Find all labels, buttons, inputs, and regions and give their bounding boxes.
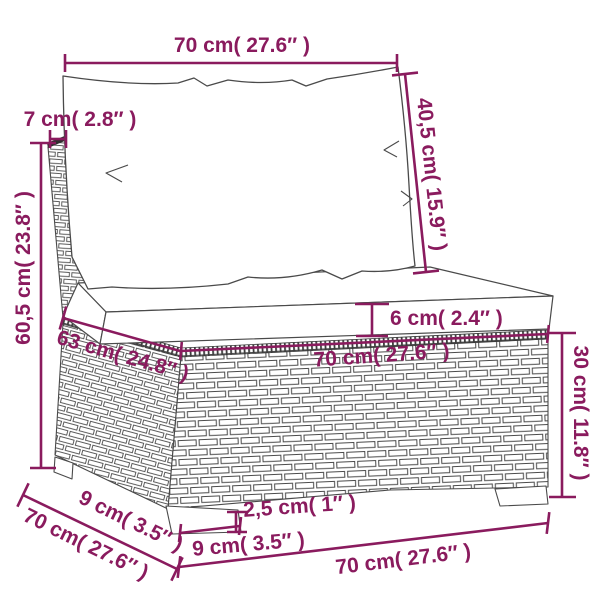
sofa-line-art (47, 67, 553, 534)
foot-front-right (495, 486, 548, 506)
label-seat-thickness: 6 cm( 2.4″ ) (390, 307, 503, 330)
label-back-thickness: 7 cm( 2.8″ ) (24, 108, 137, 131)
label-back-cushion-height: 40,5 cm( 15.9″ ) (412, 97, 451, 252)
dimension-diagram-page: 70 cm( 27.6″ ) 7 cm( 2.8″ ) 60,5 cm( 23.… (0, 0, 600, 600)
label-total-height: 60,5 cm( 23.8″ ) (12, 191, 35, 345)
dimension-diagram: 70 cm( 27.6″ ) 7 cm( 2.8″ ) 60,5 cm( 23.… (0, 0, 600, 600)
label-top-width: 70 cm( 27.6″ ) (174, 34, 310, 57)
label-base-height: 30 cm( 11.8″ ) (569, 346, 592, 481)
